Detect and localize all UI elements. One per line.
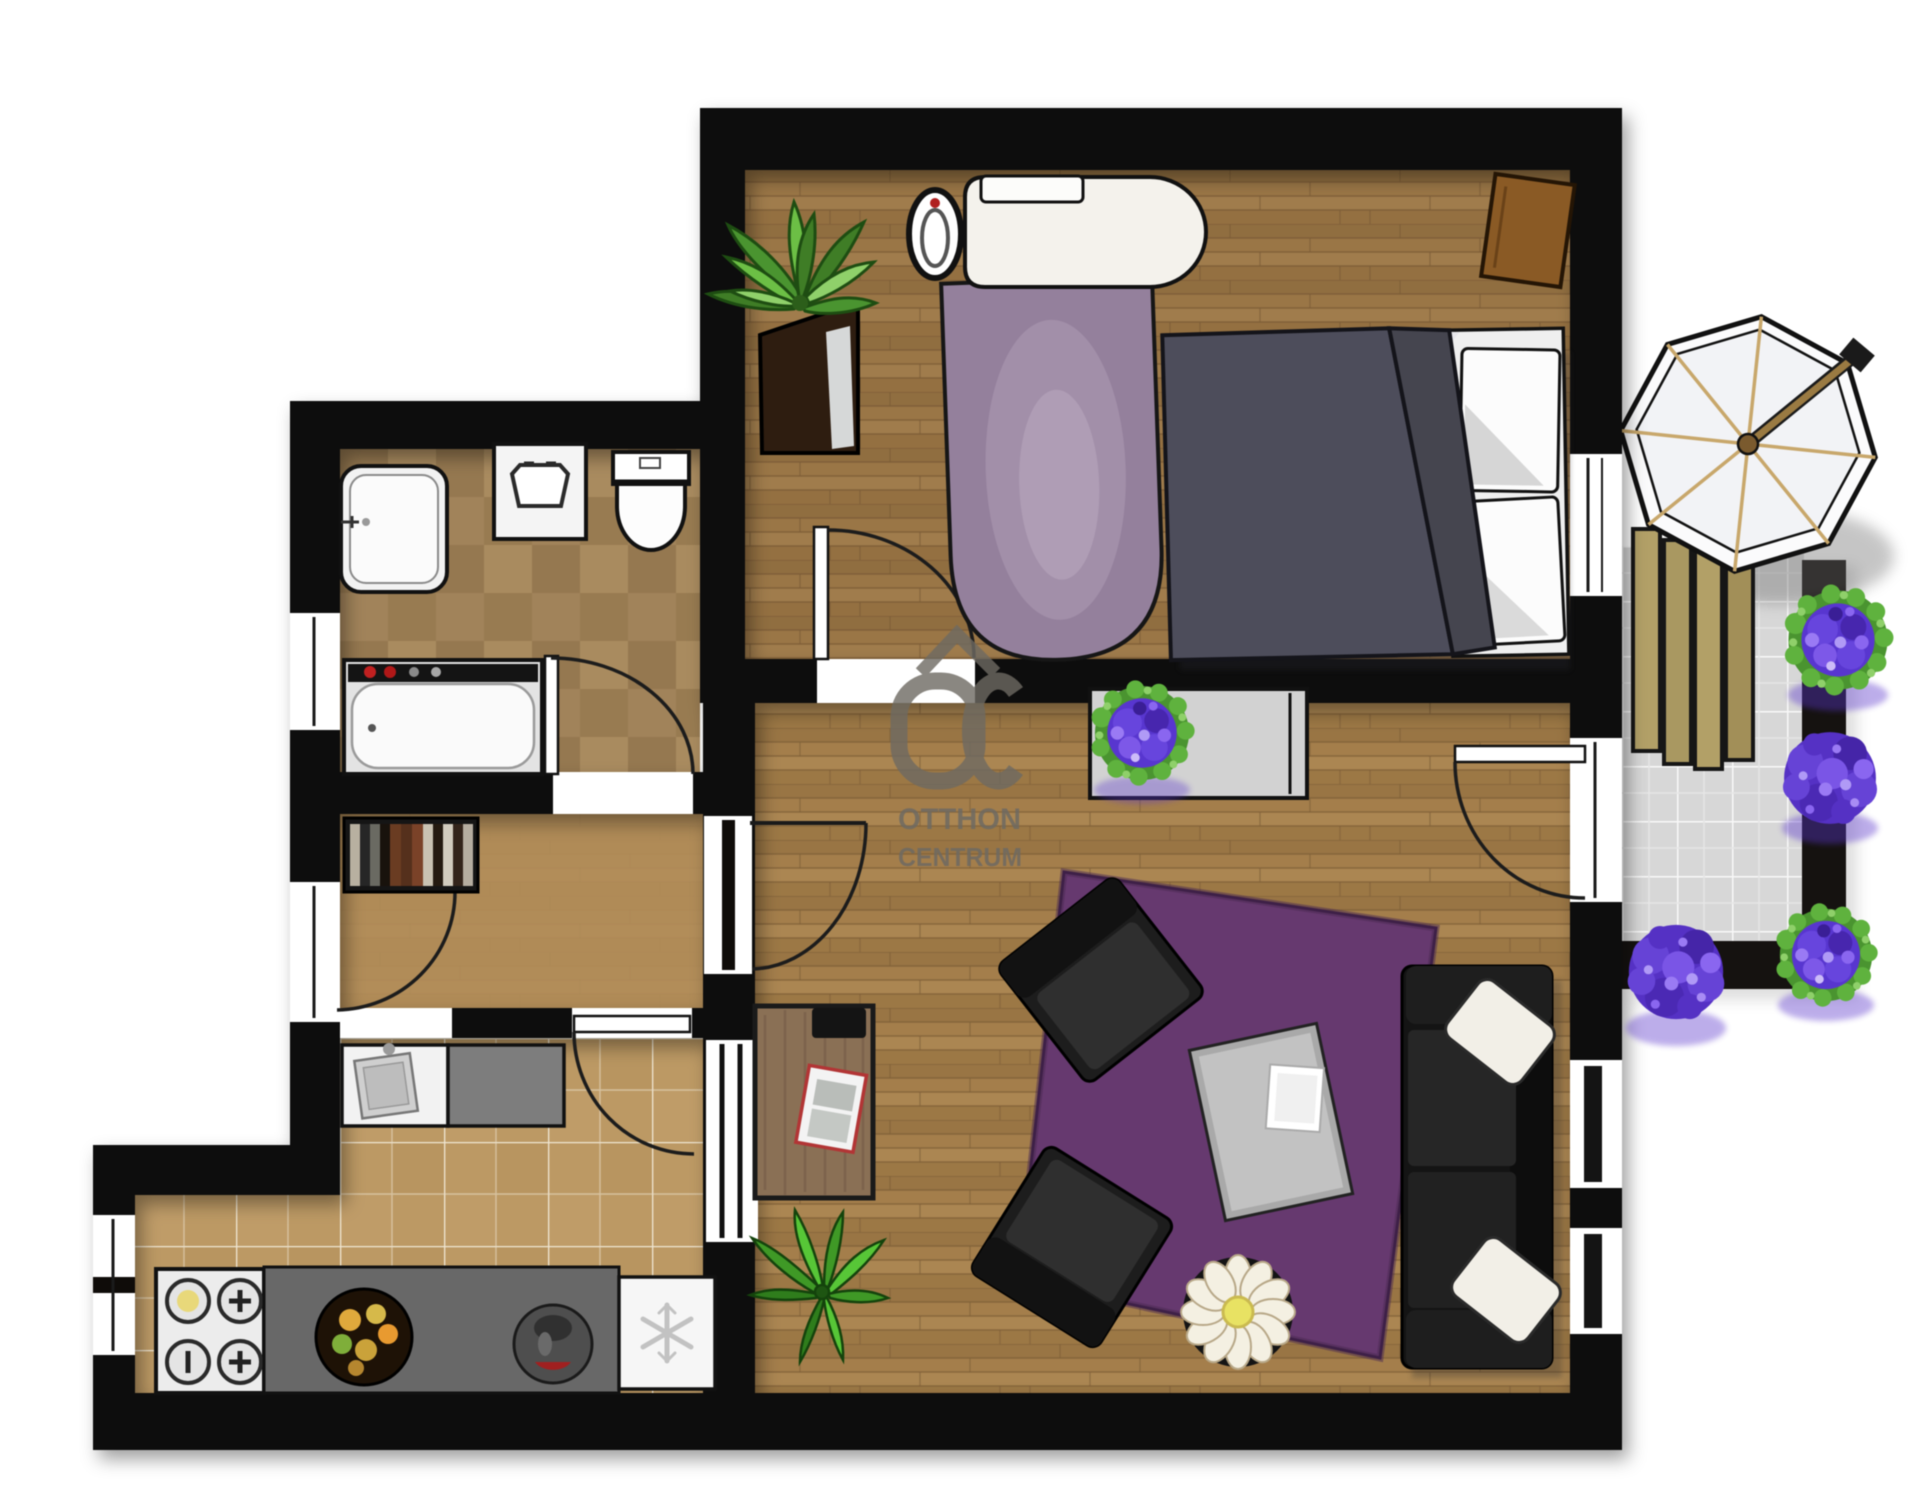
svg-text:CENTRUM: CENTRUM [898,842,1022,872]
svg-text:OTTHON: OTTHON [898,803,1021,836]
